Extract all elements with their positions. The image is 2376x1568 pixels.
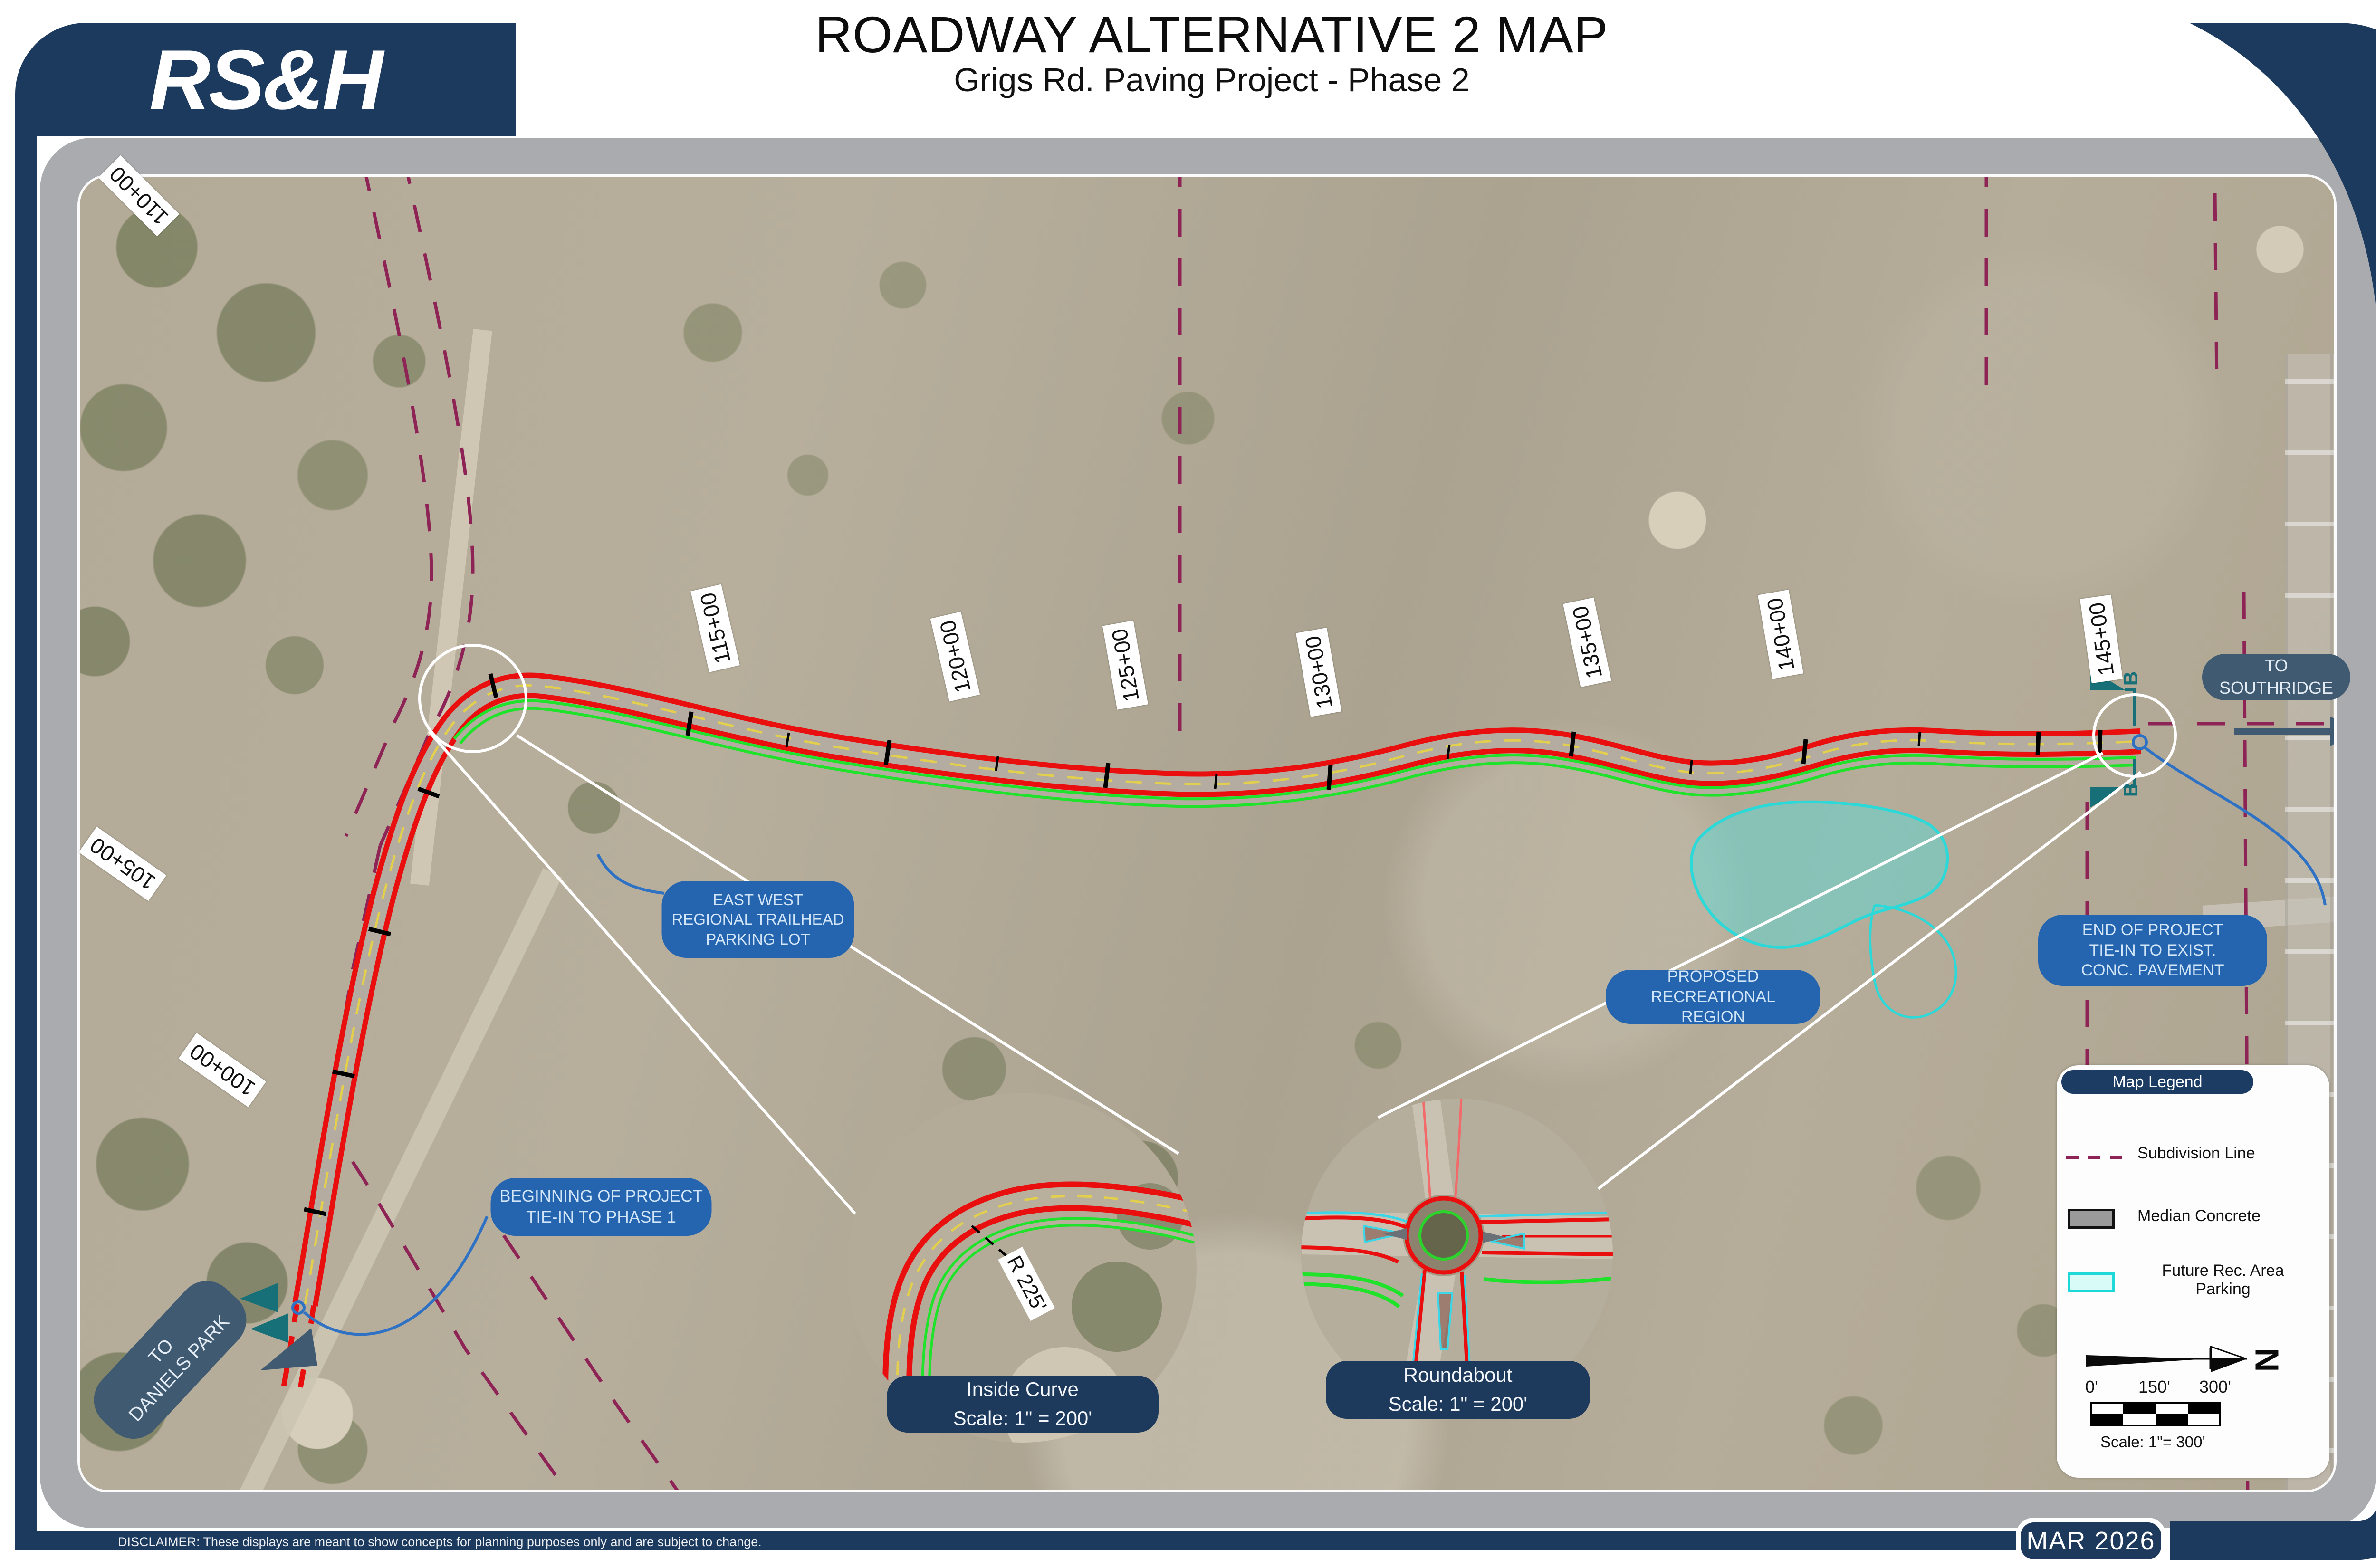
bottom-right-corner: [2170, 1471, 2376, 1560]
sheet-frame: [0, 0, 2376, 1568]
date-badge: MAR 2026: [2021, 1522, 2161, 1559]
map-sheet: ROADWAY ALTERNATIVE 2 MAP Grigs Rd. Pavi…: [0, 0, 2376, 1568]
disclaimer-text: DISCLAIMER: These displays are meant to …: [118, 1533, 762, 1551]
top-right-swoosh: [2189, 23, 2376, 361]
